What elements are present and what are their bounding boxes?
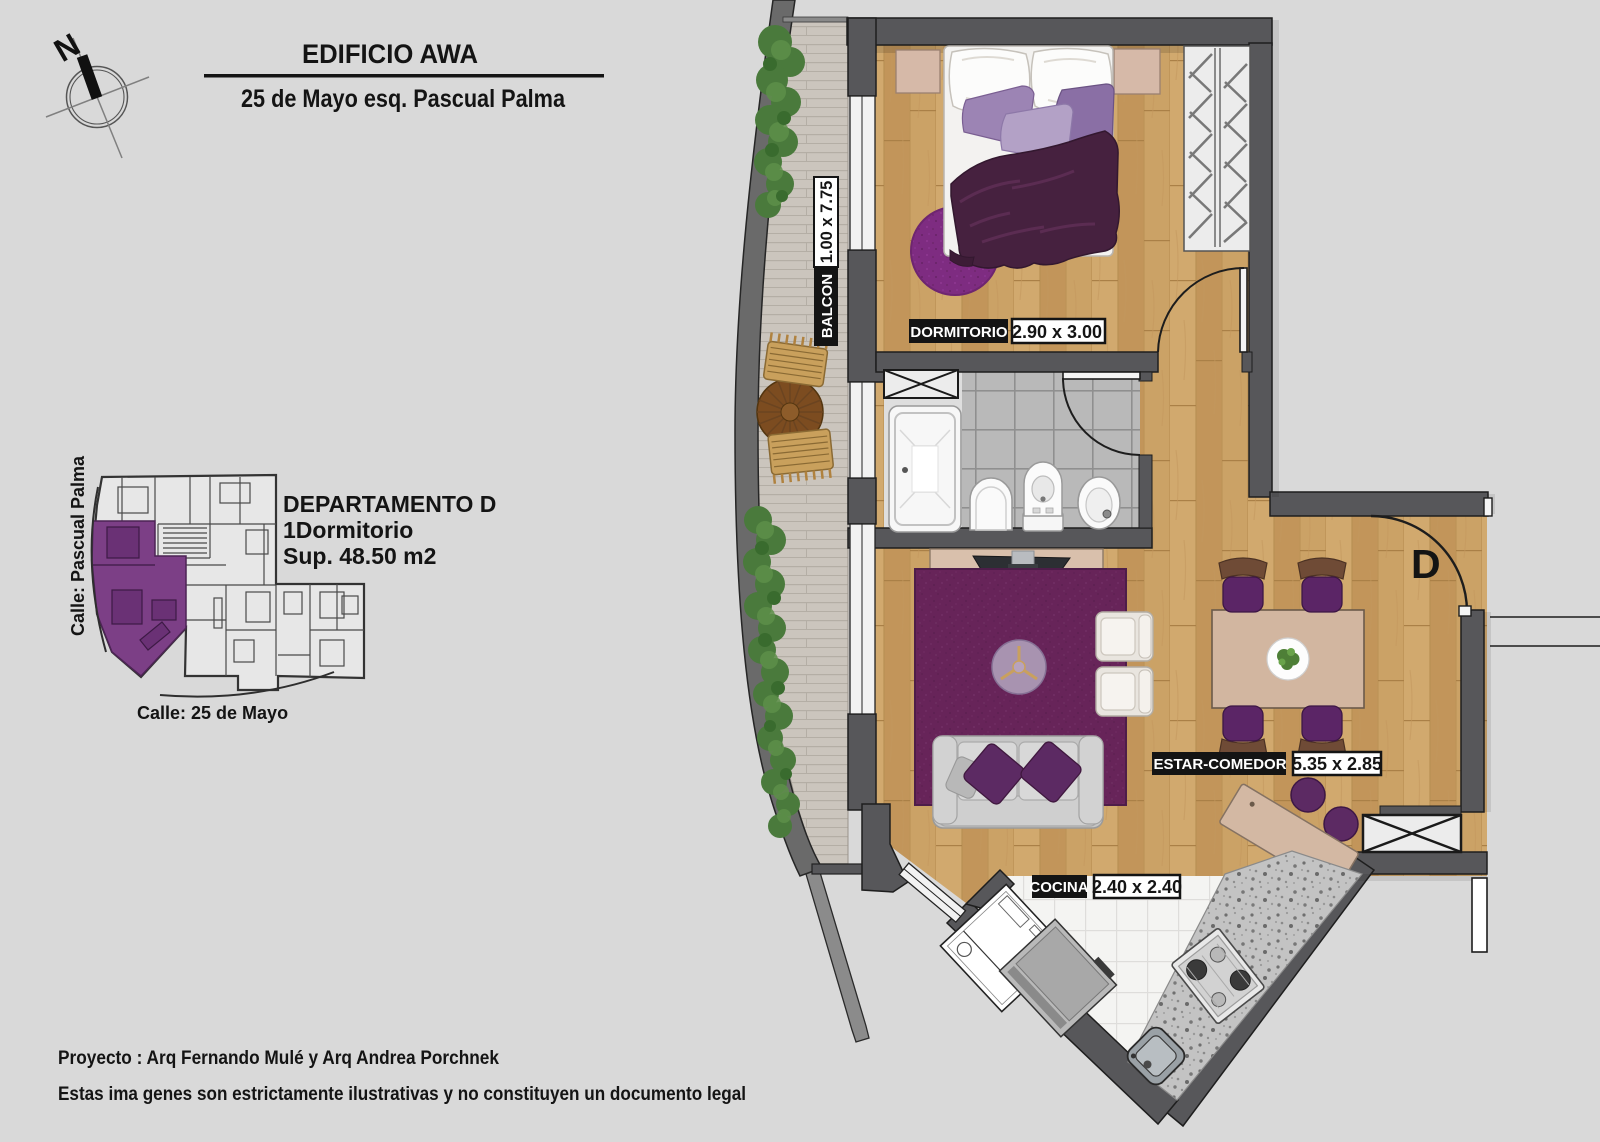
svg-text:Calle: Pascual Palma: Calle: Pascual Palma [68,455,88,636]
svg-text:Estas ima genes son estrictame: Estas ima genes son estrictamente ilustr… [58,1084,746,1105]
svg-text:Calle: 25 de Mayo: Calle: 25 de Mayo [137,703,288,723]
svg-text:25 de Mayo esq. Pascual Palma: 25 de Mayo esq. Pascual Palma [241,85,566,113]
svg-text:EDIFICIO AWA: EDIFICIO AWA [302,39,478,69]
svg-text:Proyecto : Arq Fernando Mulé y: Proyecto : Arq Fernando Mulé y Arq Andre… [58,1048,499,1069]
svg-text:1.00 x 7.75: 1.00 x 7.75 [818,181,836,264]
svg-text:DORMITORIO: DORMITORIO [910,324,1008,341]
svg-text:1Dormitorio: 1Dormitorio [283,517,413,543]
svg-text:Sup. 48.50 m2: Sup. 48.50 m2 [283,543,436,569]
svg-text:DEPARTAMENTO D: DEPARTAMENTO D [283,491,496,517]
svg-text:D: D [1411,541,1441,587]
svg-text:COCINA: COCINA [1029,879,1088,896]
svg-text:ESTAR-COMEDOR: ESTAR-COMEDOR [1153,756,1286,773]
svg-text:BALCON: BALCON [819,274,836,338]
svg-text:2.40 x 2.40: 2.40 x 2.40 [1092,877,1182,897]
svg-text:5.35 x 2.85: 5.35 x 2.85 [1292,754,1382,774]
svg-text:2.90 x 3.00: 2.90 x 3.00 [1012,322,1102,342]
